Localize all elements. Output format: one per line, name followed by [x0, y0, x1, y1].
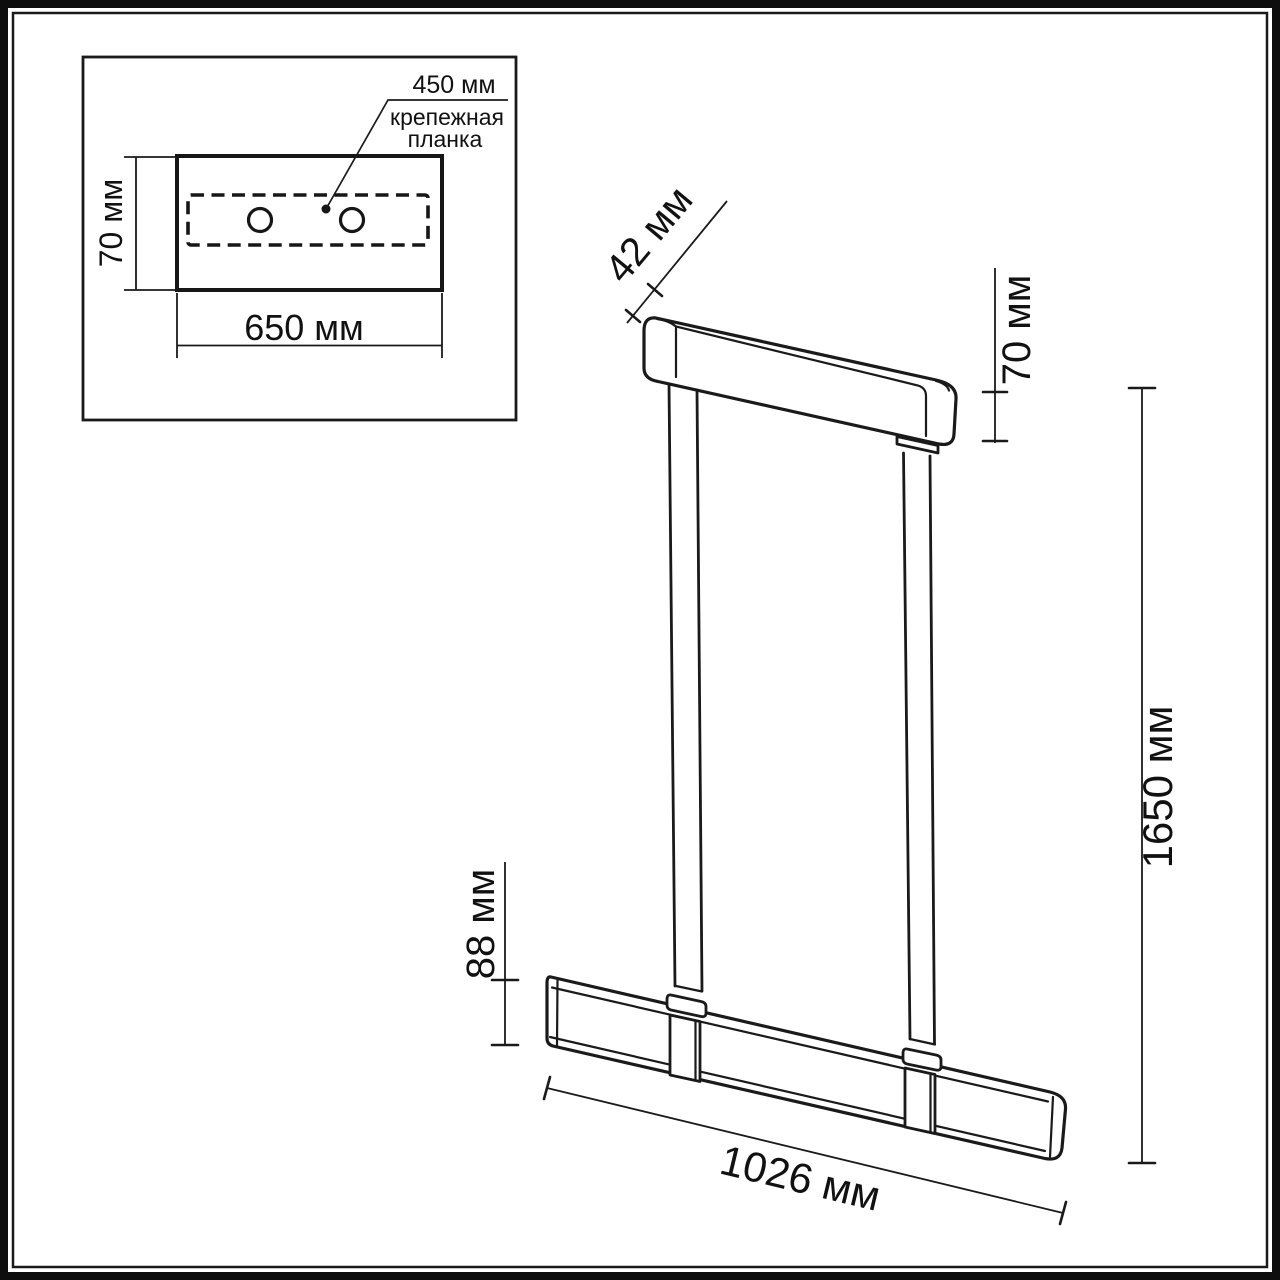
- overall-height-dim-label: 1650 мм: [1134, 706, 1181, 869]
- light-bar-left-cap-edge: [557, 981, 558, 1047]
- dim-canopy-depth: 42 мм: [597, 178, 727, 323]
- plate-height-dim-label-group: 70 мм: [93, 179, 129, 267]
- suspension-rod-right-edge1: [904, 453, 911, 1039]
- plate-length-dim-label: 650 мм: [244, 307, 364, 348]
- bar-height-dim-label: 88 мм: [459, 869, 503, 980]
- canopy-body: [644, 318, 956, 445]
- dim-overall-height: 1650 мм: [1129, 388, 1181, 1163]
- screw-hole-right: [341, 209, 364, 232]
- canopy-depth-dim-label: 42 мм: [597, 178, 702, 291]
- suspension-rod-right-edge2: [930, 456, 935, 1044]
- mounting-plate-outline: [177, 156, 442, 290]
- plate-width-dim-label: 450 мм: [412, 71, 495, 99]
- drawing-page: 450 мм крепежная планка 70 мм 650 мм: [0, 0, 1280, 1280]
- rod-seam-right: [910, 1039, 935, 1045]
- screw-hole-left: [249, 209, 272, 232]
- dim-tick-canopy-depth-1: [626, 310, 640, 322]
- plate-height-dim-label: 70 мм: [93, 179, 129, 267]
- suspension-rod-left-edge2: [697, 390, 702, 991]
- dim-bar-height: 88 мм: [459, 862, 518, 1045]
- mounting-plate-caption-line2: планка: [408, 126, 483, 152]
- dim-canopy-height: 70 мм: [983, 268, 1039, 443]
- pendant-fixture-view: 42 мм 70 мм 1650 мм 88: [459, 178, 1181, 1224]
- inset-mounting-plate-view: 450 мм крепежная планка 70 мм 650 мм: [83, 57, 516, 420]
- canopy-height-dim-label: 70 мм: [995, 275, 1039, 386]
- rod-seam-left: [676, 986, 702, 992]
- suspension-rod-left-edge1: [669, 384, 675, 986]
- technical-drawing-canvas: 450 мм крепежная планка 70 мм 650 мм: [0, 0, 1280, 1280]
